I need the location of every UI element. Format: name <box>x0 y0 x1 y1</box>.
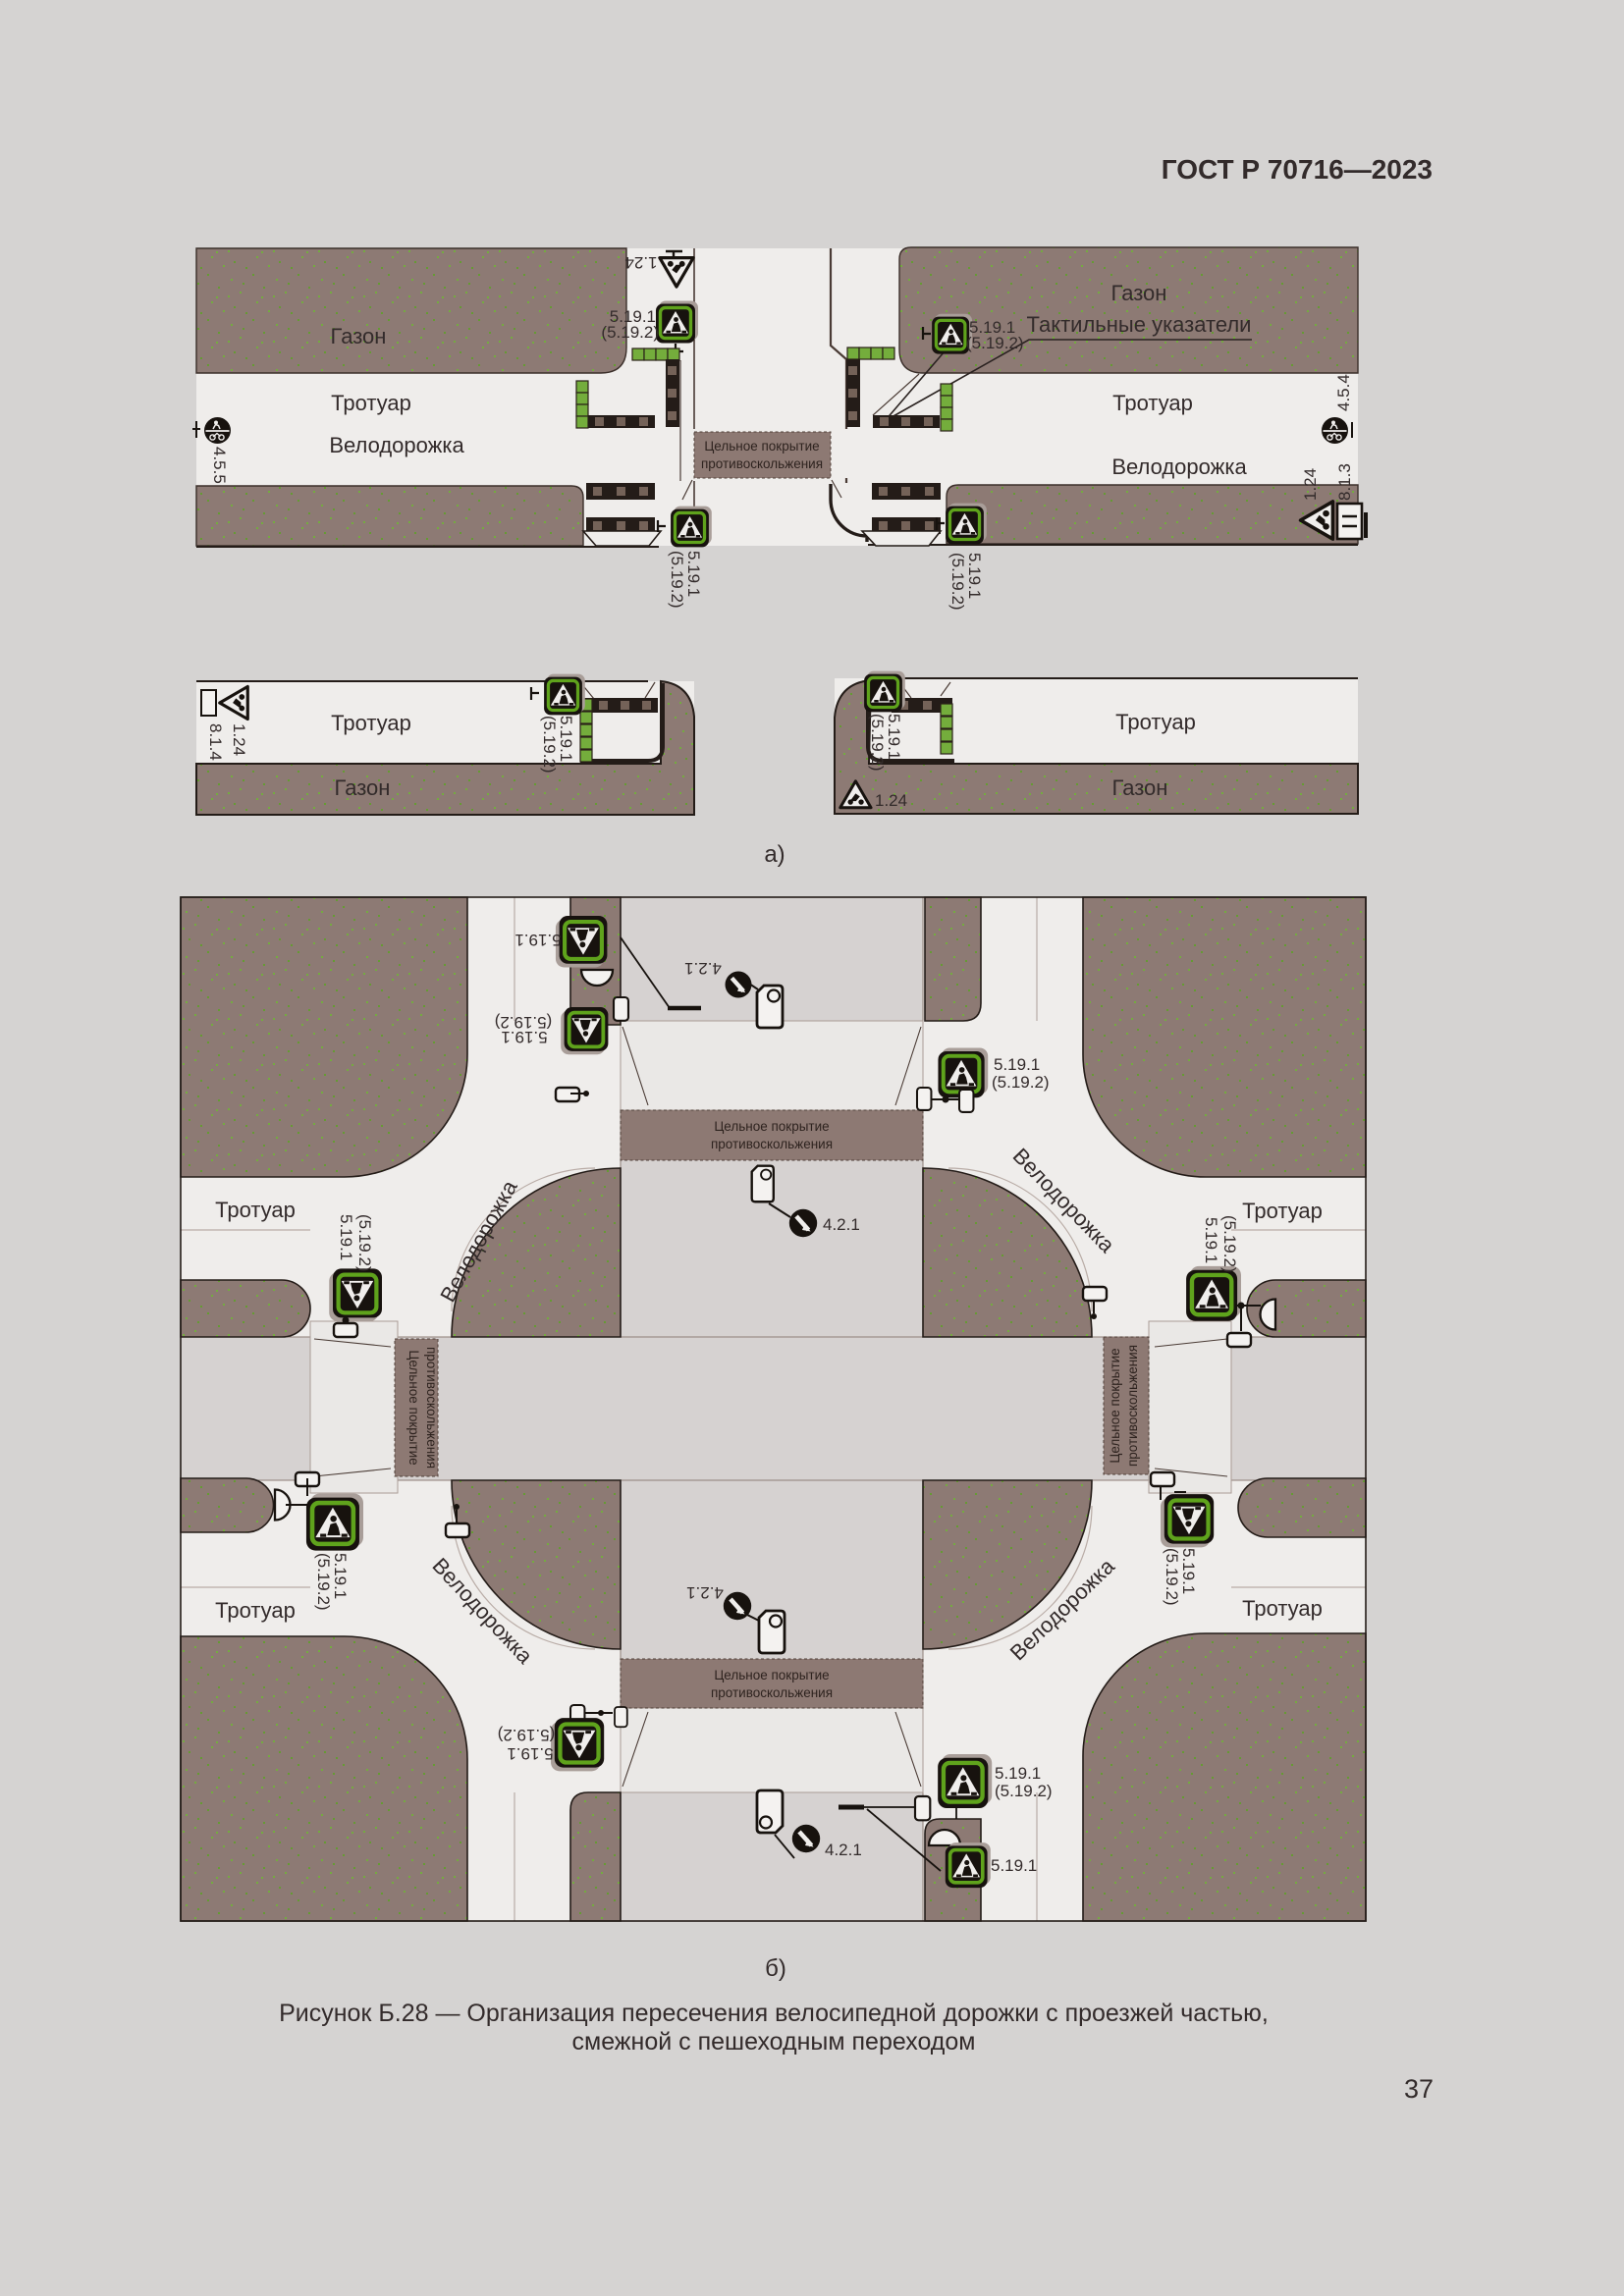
svg-text:противоскольжения: противоскольжения <box>701 456 823 471</box>
svg-text:5.19.1: 5.19.1 <box>507 1744 553 1763</box>
svg-text:Газон: Газон <box>335 775 391 800</box>
svg-text:смежной с пешеходным переходом: смежной с пешеходным переходом <box>572 2028 976 2056</box>
svg-text:а): а) <box>764 841 785 868</box>
svg-text:Тротуар: Тротуар <box>1112 391 1193 415</box>
svg-text:противоскольжения: противоскольжения <box>1125 1345 1140 1467</box>
svg-text:1.24: 1.24 <box>624 253 657 272</box>
svg-text:Газон: Газон <box>1112 775 1168 800</box>
svg-text:Цельное покрытие: Цельное покрытие <box>704 439 819 454</box>
svg-text:противоскольжения: противоскольжения <box>424 1347 439 1468</box>
svg-text:(5.19.2): (5.19.2) <box>601 323 659 342</box>
svg-text:8.1.4: 8.1.4 <box>206 723 225 761</box>
svg-text:5.19.1: 5.19.1 <box>1202 1217 1220 1263</box>
svg-text:Тротуар: Тротуар <box>331 391 411 415</box>
svg-text:(5.19.2): (5.19.2) <box>355 1214 374 1272</box>
svg-text:(5.19.2): (5.19.2) <box>995 1782 1053 1800</box>
svg-text:5.19.1: 5.19.1 <box>991 1856 1037 1875</box>
svg-text:5.19.1: 5.19.1 <box>501 1028 547 1046</box>
svg-text:Цельное покрытие: Цельное покрытие <box>1108 1348 1122 1463</box>
svg-text:8.1.3: 8.1.3 <box>1335 463 1354 501</box>
svg-text:Тротуар: Тротуар <box>1242 1199 1323 1223</box>
svg-text:(5.19.2): (5.19.2) <box>1163 1548 1181 1606</box>
svg-text:4.5.4: 4.5.4 <box>1334 374 1353 411</box>
svg-text:ГОСТ Р 70716—2023: ГОСТ Р 70716—2023 <box>1162 154 1433 185</box>
svg-text:Тротуар: Тротуар <box>1115 710 1196 734</box>
svg-text:(5.19.2): (5.19.2) <box>966 334 1024 352</box>
svg-text:(5.19.2): (5.19.2) <box>314 1553 333 1611</box>
svg-text:4.2.1: 4.2.1 <box>684 959 722 978</box>
svg-text:4.2.1: 4.2.1 <box>825 1841 862 1859</box>
svg-text:(5.19.2): (5.19.2) <box>498 1726 556 1744</box>
svg-text:Тротуар: Тротуар <box>215 1598 296 1623</box>
svg-text:Тактильные указатели: Тактильные указатели <box>1027 312 1252 337</box>
svg-text:5.19.1: 5.19.1 <box>337 1214 355 1260</box>
svg-text:(5.19.2): (5.19.2) <box>868 714 887 772</box>
svg-text:Цельное покрытие: Цельное покрытие <box>714 1119 829 1134</box>
svg-text:1.24: 1.24 <box>1301 468 1320 501</box>
svg-text:(5.19.2): (5.19.2) <box>668 551 686 609</box>
svg-text:5.19.1: 5.19.1 <box>995 1764 1041 1783</box>
svg-text:противоскольжения: противоскольжения <box>711 1137 833 1151</box>
svg-text:Тротуар: Тротуар <box>1242 1596 1323 1621</box>
svg-text:37: 37 <box>1404 2074 1434 2104</box>
svg-text:Велодорожка: Велодорожка <box>329 433 464 457</box>
svg-text:1.24: 1.24 <box>230 723 248 756</box>
svg-text:4.5.5: 4.5.5 <box>210 447 229 484</box>
svg-text:5.19.1: 5.19.1 <box>994 1055 1040 1074</box>
svg-text:(5.19.2): (5.19.2) <box>992 1073 1050 1092</box>
svg-text:Тротуар: Тротуар <box>215 1198 296 1222</box>
svg-text:4.2.1: 4.2.1 <box>823 1215 860 1234</box>
svg-text:Цельное покрытие: Цельное покрытие <box>714 1668 829 1682</box>
svg-text:Тротуар: Тротуар <box>331 711 411 735</box>
svg-text:Рисунок Б.28 — Организация пер: Рисунок Б.28 — Организация пересечения в… <box>279 2000 1269 2027</box>
svg-text:(5.19.2): (5.19.2) <box>1220 1215 1239 1273</box>
svg-text:противоскольжения: противоскольжения <box>711 1685 833 1700</box>
svg-text:Газон: Газон <box>331 324 387 348</box>
svg-text:(5.19.2): (5.19.2) <box>948 553 967 611</box>
svg-text:Газон: Газон <box>1111 281 1167 305</box>
svg-text:Цельное покрытие: Цельное покрытие <box>406 1350 421 1465</box>
svg-text:5.19.1: 5.19.1 <box>514 931 561 949</box>
svg-text:1.24: 1.24 <box>875 791 907 810</box>
svg-text:Велодорожка: Велодорожка <box>1111 454 1247 479</box>
svg-text:4.2.1: 4.2.1 <box>686 1583 724 1602</box>
svg-text:б): б) <box>765 1955 786 1982</box>
svg-text:(5.19.2): (5.19.2) <box>540 716 559 774</box>
